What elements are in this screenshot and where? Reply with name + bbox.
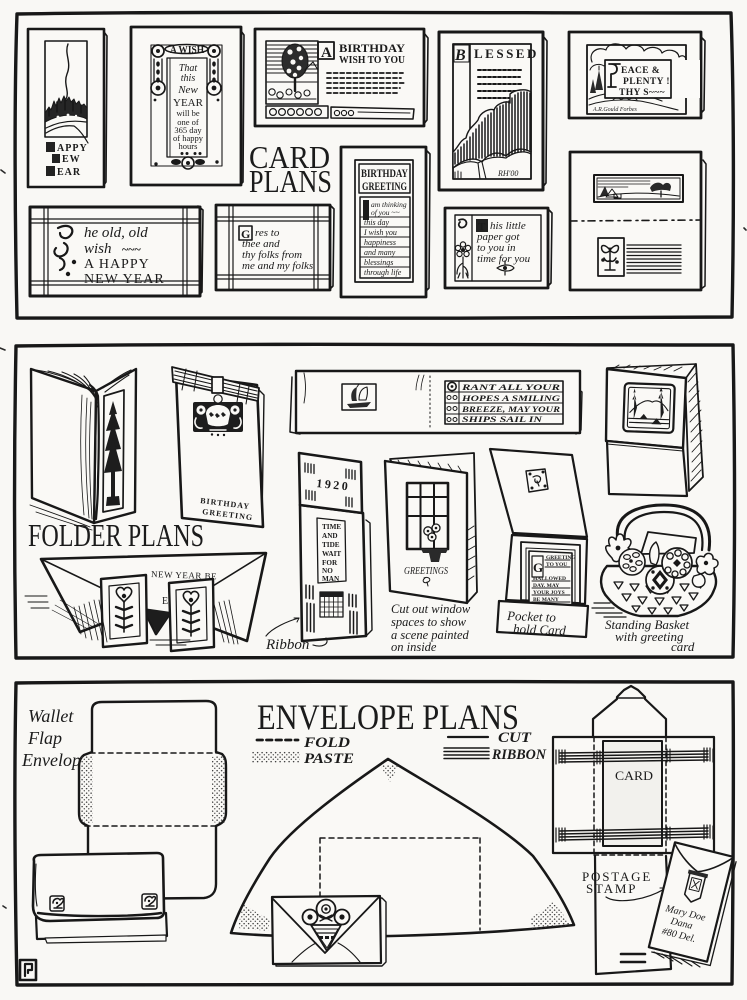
svg-text:this: this <box>181 73 196 84</box>
svg-text:AND: AND <box>322 532 338 540</box>
svg-text:BIRTHDAY: BIRTHDAY <box>339 41 405 55</box>
svg-text:DAY. MAY: DAY. MAY <box>533 583 559 589</box>
svg-text:B: B <box>454 47 466 64</box>
svg-text:A: A <box>321 45 332 61</box>
svg-text:I wish you: I wish you <box>363 228 397 237</box>
svg-text:FOR: FOR <box>322 559 338 567</box>
svg-text:GREETING: GREETING <box>362 179 407 193</box>
svg-text:this day: this day <box>364 218 390 227</box>
svg-text:through life: through life <box>364 268 402 277</box>
svg-text:G: G <box>533 560 543 575</box>
svg-text:THY S~~~: THY S~~~ <box>619 88 665 98</box>
svg-text:A.R.Gould Forbes: A.R.Gould Forbes <box>592 107 637 113</box>
svg-text:time for you: time for you <box>477 253 531 265</box>
svg-text:CARD: CARD <box>615 768 653 783</box>
svg-text:and many: and many <box>364 248 396 257</box>
svg-text:EAR: EAR <box>57 167 81 178</box>
svg-text:RIBBON: RIBBON <box>491 747 547 763</box>
svg-text:CUT: CUT <box>498 730 532 746</box>
svg-text:HALLOWED: HALLOWED <box>533 576 566 582</box>
svg-text:EACE &: EACE & <box>621 66 660 76</box>
svg-text:APPY: APPY <box>57 143 88 154</box>
svg-text:WISH TO YOU: WISH TO YOU <box>339 55 405 66</box>
svg-text:hours: hours <box>179 141 198 151</box>
svg-text:wish: wish <box>84 241 112 257</box>
svg-text:he old, old: he old, old <box>84 225 148 241</box>
svg-text:MAN: MAN <box>322 575 340 583</box>
svg-text:TIDE: TIDE <box>322 541 340 549</box>
svg-text:LESSED: LESSED <box>474 46 539 61</box>
svg-text:A WISH: A WISH <box>170 45 204 56</box>
svg-text:GREETINGS: GREETINGS <box>404 566 449 577</box>
svg-text:NO: NO <box>322 567 333 575</box>
svg-text:Wallet: Wallet <box>28 706 74 726</box>
svg-text:PASTE: PASTE <box>304 751 354 767</box>
svg-text:spaces to show: spaces to show <box>391 615 467 629</box>
svg-text:BREEZE, MAY YOUR: BREEZE, MAY YOUR <box>461 404 561 414</box>
svg-text:TO YOU: TO YOU <box>546 562 567 568</box>
svg-text:PLANS: PLANS <box>249 163 332 199</box>
svg-text:RANT ALL YOUR: RANT ALL YOUR <box>460 382 560 392</box>
svg-text:on inside: on inside <box>391 640 437 654</box>
svg-text:GREETING: GREETING <box>546 555 576 561</box>
svg-text:Ribbon: Ribbon <box>265 637 309 653</box>
svg-text:PLENTY !: PLENTY ! <box>623 77 670 87</box>
svg-text:TIME: TIME <box>322 523 341 531</box>
svg-text:YOUR JOYS: YOUR JOYS <box>533 590 565 596</box>
svg-text:STAMP: STAMP <box>586 881 637 896</box>
svg-text:happiness: happiness <box>364 238 396 247</box>
svg-text:EW: EW <box>62 154 81 165</box>
svg-text:A HAPPY: A HAPPY <box>84 257 150 272</box>
svg-text:BIRTHDAY: BIRTHDAY <box>361 166 408 180</box>
svg-text:WAIT: WAIT <box>322 550 341 558</box>
svg-text:Flap: Flap <box>27 728 62 748</box>
svg-text:card: card <box>671 639 695 654</box>
svg-text:Cut out window: Cut out window <box>391 602 471 616</box>
svg-text:FOLDER PLANS: FOLDER PLANS <box>28 517 204 553</box>
svg-text:ENVELOPE PLANS: ENVELOPE PLANS <box>257 697 519 737</box>
svg-text:FOLD: FOLD <box>303 735 350 751</box>
svg-text:~~~: ~~~ <box>122 242 141 256</box>
svg-text:HOPES A SMILING: HOPES A SMILING <box>461 393 561 403</box>
svg-text:NEW YEAR: NEW YEAR <box>84 272 165 287</box>
svg-text:me and my folks: me and my folks <box>242 260 313 272</box>
svg-text:blessings: blessings <box>364 258 393 267</box>
svg-text:SHIPS SAIL IN: SHIPS SAIL IN <box>462 414 543 424</box>
svg-text:of you ~~: of you ~~ <box>371 208 400 217</box>
svg-text:hold Card: hold Card <box>513 621 567 638</box>
svg-text:RH'00: RH'00 <box>497 169 518 178</box>
svg-text:New: New <box>177 84 198 96</box>
